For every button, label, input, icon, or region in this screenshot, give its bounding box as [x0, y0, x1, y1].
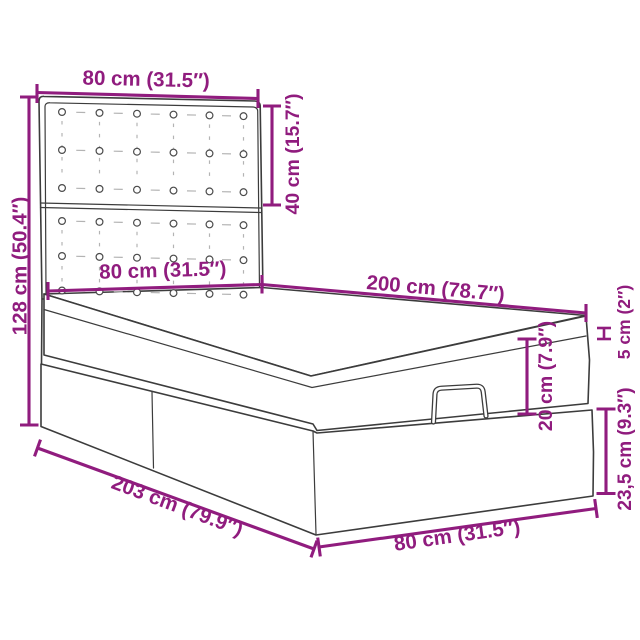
tufting-button [96, 218, 103, 225]
tufting-button [240, 189, 247, 196]
tufting-button [170, 187, 177, 194]
tufting-button [206, 112, 213, 119]
bed-dimension-diagram: 80 cm (31.5″) 40 cm (15.7″) 128 cm (50.4… [0, 0, 640, 640]
tufting-button [96, 147, 103, 154]
tufting-button [134, 219, 141, 226]
tufting-button [170, 149, 177, 156]
tufting-button [240, 222, 247, 229]
tufting-button [134, 148, 141, 155]
headboard-height-label: 40 cm (15.7″) [282, 94, 304, 215]
tufting-button [96, 185, 103, 192]
topper-thickness-label: 5 cm (2″) [614, 285, 634, 360]
tufting-button [134, 110, 141, 117]
tufting-button [206, 290, 213, 297]
total-height-label: 128 cm (50.4″) [9, 197, 32, 336]
tufting-button [206, 188, 213, 195]
bed-drawing [39, 96, 594, 535]
tufting-button [206, 150, 213, 157]
tufting-button [240, 257, 247, 264]
tufting-button [170, 290, 177, 297]
dim-base-height [597, 409, 616, 494]
headboard-width-label: 80 cm (31.5″) [82, 66, 210, 92]
tufting-button [240, 291, 247, 298]
tufting-button [240, 151, 247, 158]
tufting-button [170, 111, 177, 118]
mattress-thickness-label: 20 cm (7.9″) [535, 321, 557, 431]
dim-headboard-height [263, 106, 281, 205]
dim-topper-thickness [597, 328, 611, 339]
bed-left-edge [42, 299, 43, 364]
tufting-button [59, 147, 66, 154]
tufting-button [96, 253, 103, 260]
tufting-button [59, 185, 66, 192]
tufting-button [59, 253, 66, 260]
tufting-button [206, 221, 213, 228]
bed-width-top-label: 80 cm (31.5″) [99, 257, 227, 284]
tufting-button [170, 220, 177, 227]
tufting-button [96, 109, 103, 116]
base-height-label: 23,5 cm (9.3″) [615, 387, 636, 510]
tufting-button [59, 218, 66, 225]
tufting-button [240, 113, 247, 120]
tufting-button [134, 186, 141, 193]
tufting-button [59, 109, 66, 116]
